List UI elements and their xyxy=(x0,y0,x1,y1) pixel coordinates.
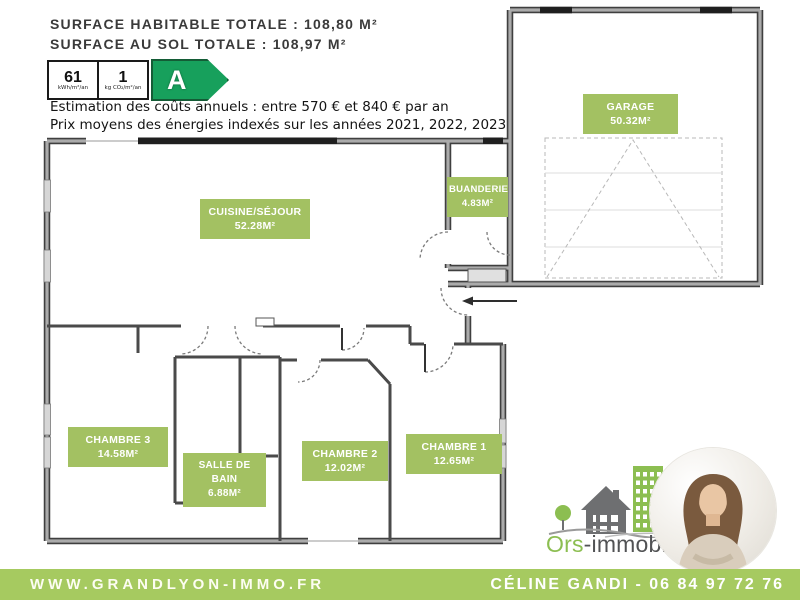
brand-prefix: Ors xyxy=(546,531,584,557)
room-name: CHAMBRE 1 xyxy=(408,440,500,454)
room-area: 12.02M² xyxy=(304,461,386,475)
footer-bar: WWW.GRANDLYON-IMMO.FR CÉLINE GANDI - 06 … xyxy=(0,569,800,600)
room-name: CUISINE/SÉJOUR xyxy=(202,205,308,219)
radiator xyxy=(256,318,274,326)
room-area: 50.32M² xyxy=(585,114,676,128)
room-area: 4.83M² xyxy=(449,197,506,211)
room-area: 52.28M² xyxy=(202,219,308,233)
garage-door-marks xyxy=(545,138,722,278)
agent-photo xyxy=(650,448,776,574)
room-label-chambre-3: CHAMBRE 3 14.58M² xyxy=(68,427,168,467)
room-name: SALLE DE BAIN xyxy=(185,459,264,487)
website-url: WWW.GRANDLYON-IMMO.FR xyxy=(30,576,325,593)
entry-step xyxy=(468,269,506,282)
room-label-salle-de-bain: SALLE DE BAIN 6.88M² xyxy=(183,453,266,507)
room-name: GARAGE xyxy=(585,100,676,114)
room-area: 12.65M² xyxy=(408,454,500,468)
room-area: 14.58M² xyxy=(70,447,166,461)
room-name: BUANDERIE xyxy=(449,183,506,197)
agent-portrait-illustration xyxy=(650,448,776,574)
flyer-page: SURFACE HABITABLE TOTALE : 108,80 M² SUR… xyxy=(0,0,800,600)
room-area: 6.88M² xyxy=(185,487,264,501)
room-label-cuisine-sejour: CUISINE/SÉJOUR 52.28M² xyxy=(200,199,310,239)
room-label-buanderie: BUANDERIE 4.83M² xyxy=(447,177,508,217)
door-leaves xyxy=(342,328,425,372)
room-name: CHAMBRE 3 xyxy=(70,433,166,447)
room-label-garage: GARAGE 50.32M² xyxy=(583,94,678,134)
agent-contact: CÉLINE GANDI - 06 84 97 72 76 xyxy=(490,576,784,594)
room-label-chambre-2: CHAMBRE 2 12.02M² xyxy=(302,441,388,481)
room-label-chambre-1: CHAMBRE 1 12.65M² xyxy=(406,434,502,474)
room-name: CHAMBRE 2 xyxy=(304,447,386,461)
entrance-arrow-icon xyxy=(462,297,517,306)
